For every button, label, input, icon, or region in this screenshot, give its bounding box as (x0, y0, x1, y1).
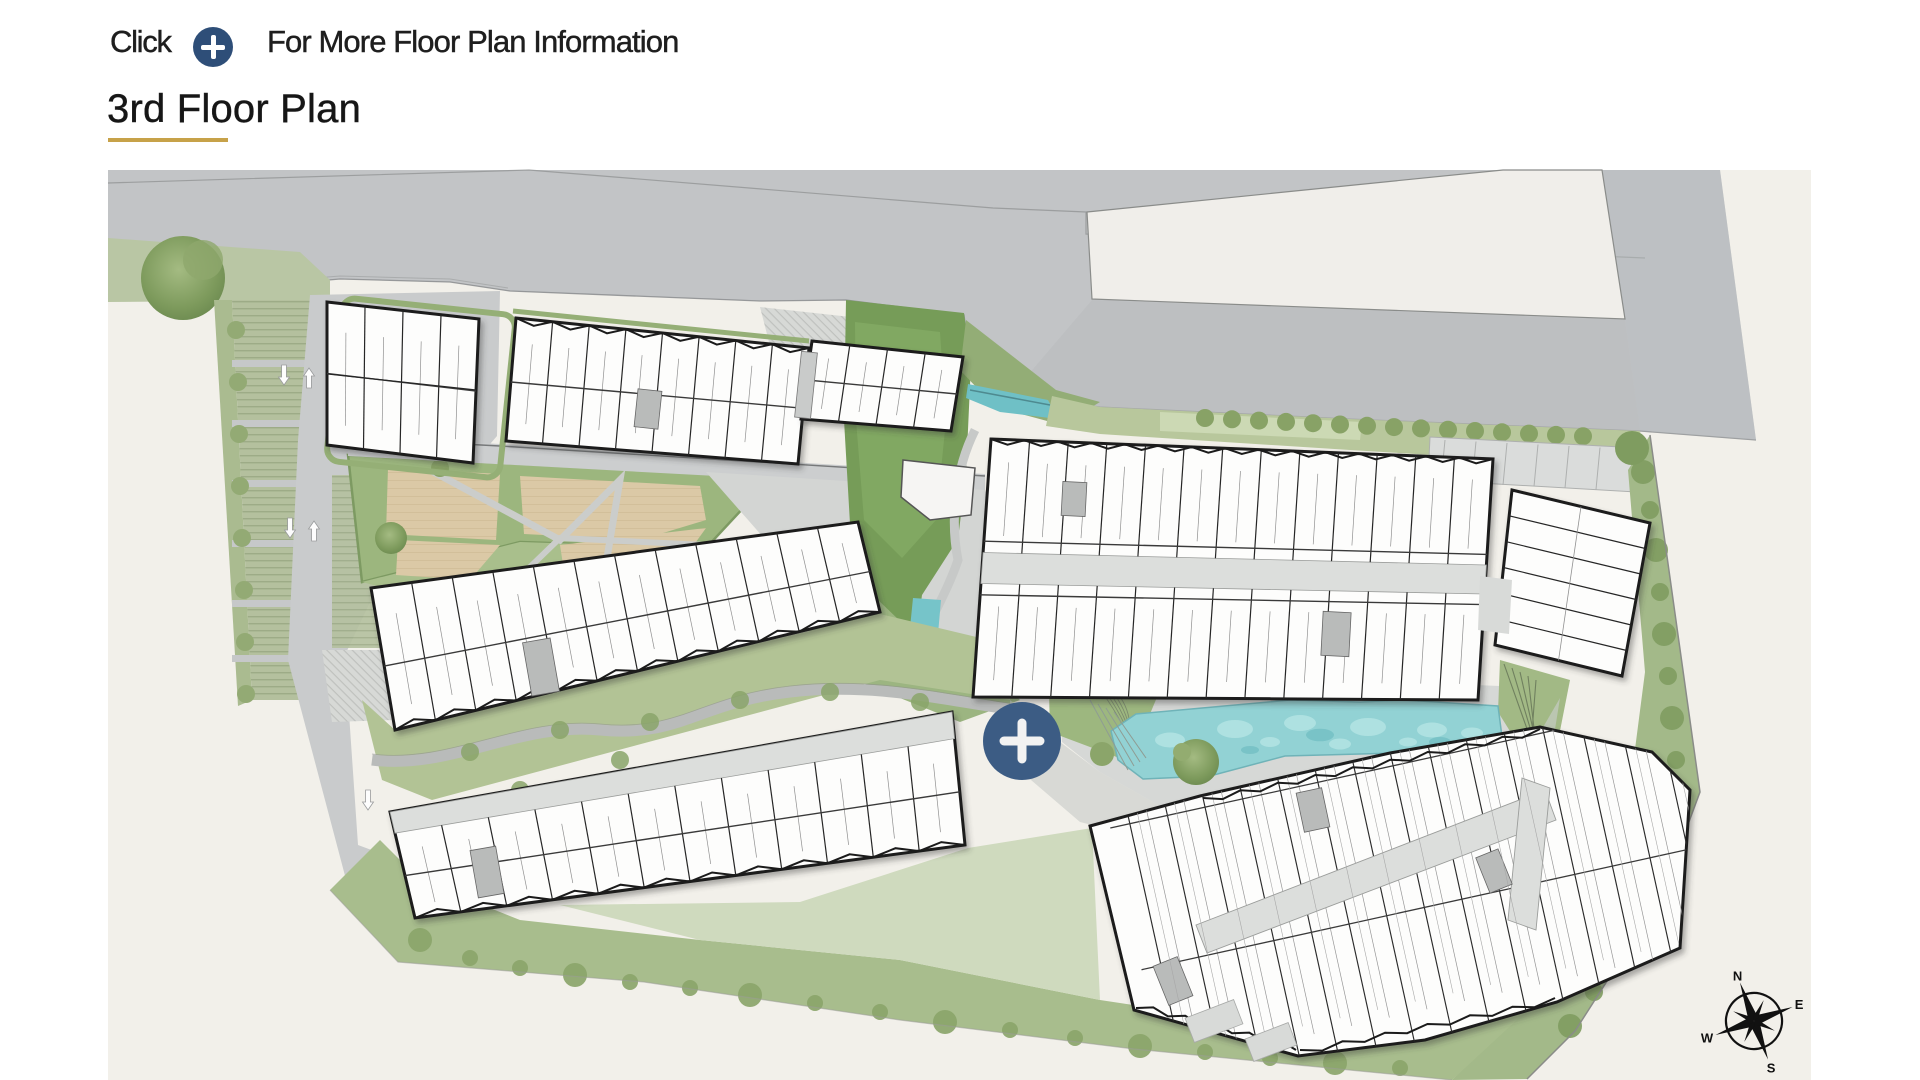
svg-text:W: W (1701, 1031, 1714, 1046)
svg-text:S: S (1767, 1061, 1776, 1076)
svg-text:E: E (1795, 997, 1804, 1012)
svg-text:N: N (1733, 968, 1742, 983)
